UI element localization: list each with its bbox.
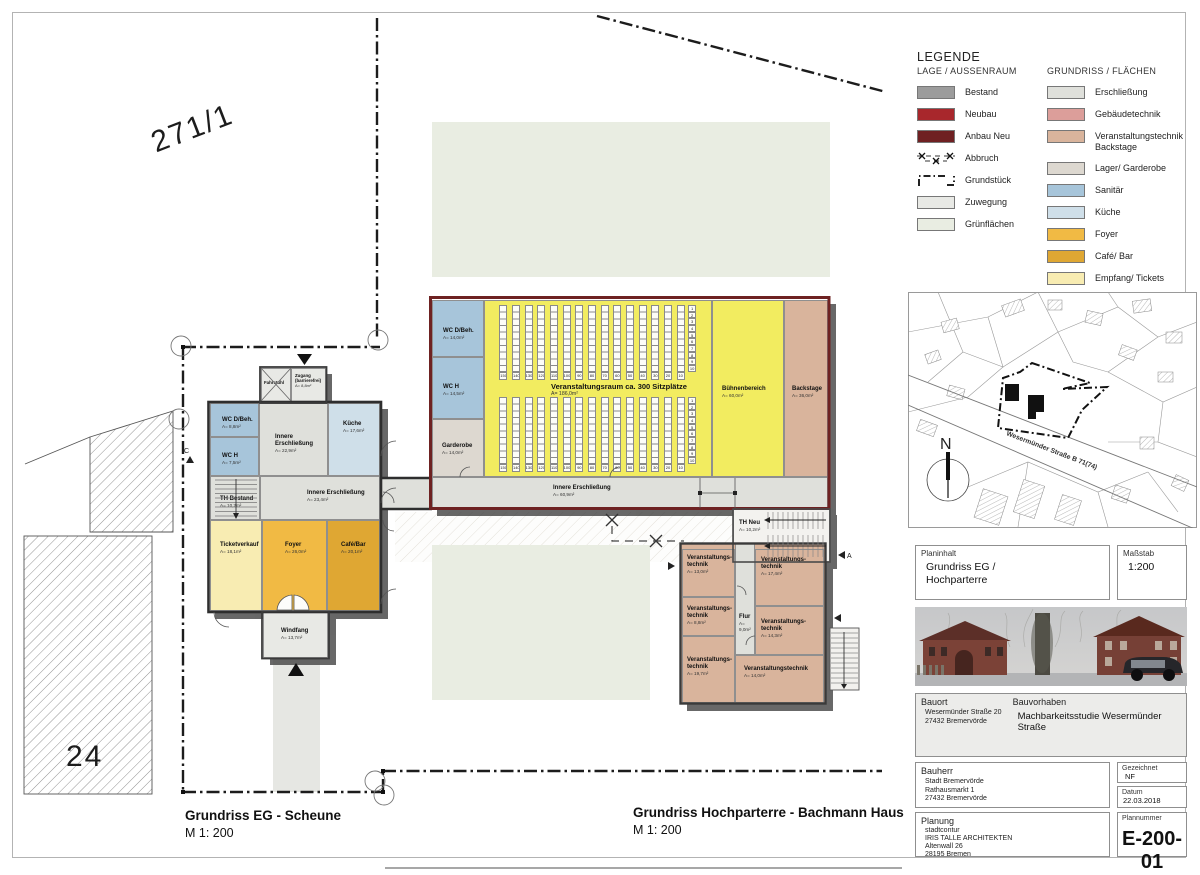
legend-swatch-anbau_neu	[917, 130, 955, 143]
seat-column	[499, 397, 507, 464]
seat-column	[525, 305, 533, 372]
bauort-label: Bauort	[916, 694, 1008, 707]
seat-column	[537, 397, 545, 464]
bauvorhaben-value: Machbarkeitsstudie Wesermünder Straße	[1008, 707, 1186, 733]
seat-count-label: 40	[639, 464, 647, 472]
plan-scale: M 1: 200	[633, 823, 904, 837]
plannummer-label: Plannummer	[1118, 813, 1186, 822]
bauherr-box: Bauherr Stadt BremervördeRathausmarkt 12…	[915, 762, 1110, 808]
parcel-label-24: 24	[66, 740, 103, 774]
planinhalt-box: Planinhalt Grundriss EG /Hochparterre	[915, 545, 1110, 600]
seat-column	[664, 305, 672, 372]
legend-swatch-neubau	[917, 108, 955, 121]
legend-swatch-zuwegung	[917, 196, 955, 209]
massstab-label: Maßstab	[1118, 546, 1186, 558]
seat-count-label: 30	[651, 372, 659, 380]
seat-count-label: 150	[499, 464, 507, 472]
seat-count-label: 150	[499, 372, 507, 380]
gezeichnet-label: Gezeichnet	[1118, 763, 1186, 772]
seat-count-label: 140	[512, 372, 520, 380]
seat-count-label: 100	[563, 464, 571, 472]
datum-value: 22.03.2018	[1118, 796, 1186, 805]
seat-column	[651, 305, 659, 372]
seat-row-number: 7	[688, 437, 696, 444]
datum-box: Datum 22.03.2018	[1117, 786, 1187, 808]
seat-count-label: 70	[601, 464, 609, 472]
seat-column	[613, 397, 621, 464]
seat-column	[639, 305, 647, 372]
seat-row-number: 5	[688, 332, 696, 339]
seat-column	[588, 305, 596, 372]
legend-item: Veranstaltungstechnik Backstage	[1047, 130, 1197, 153]
legend-item: Grundstück	[917, 174, 1042, 187]
seat-count-label: 60	[613, 464, 621, 472]
seat-column	[512, 397, 520, 464]
planung-label: Planung	[916, 813, 1109, 826]
seat-row-number: 3	[688, 410, 696, 417]
seat-column	[588, 397, 596, 464]
plannummer-box: Plannummer E-200-01	[1117, 812, 1187, 857]
legend-item: Küche	[1047, 206, 1197, 219]
seat-column	[677, 305, 685, 372]
planinhalt-label: Planinhalt	[916, 546, 1109, 558]
seat-column	[575, 305, 583, 372]
seat-row-number: 6	[688, 338, 696, 345]
legend-label: Foyer	[1095, 228, 1118, 240]
legend-header: GRUNDRISS / FLÄCHEN	[1047, 66, 1197, 76]
gezeichnet-value: NF	[1118, 772, 1186, 781]
seat-row-number: 8	[688, 444, 696, 451]
planinhalt-value: Grundriss EG /Hochparterre	[916, 558, 1109, 587]
legend-item: Abbruch	[917, 152, 1042, 165]
seat-row-number: 1	[688, 397, 696, 404]
legend-label: Neubau	[965, 108, 997, 120]
legend-label: Sanitär	[1095, 184, 1124, 196]
caption-scheune: Grundriss EG - Scheune M 1: 200	[185, 808, 341, 840]
seat-column	[601, 305, 609, 372]
drawing-sheet: FahrstuhlZugang (barrierefrei)A= 8,8m²WC…	[0, 0, 1200, 875]
seat-column	[575, 397, 583, 464]
seat-count-label: 80	[588, 464, 596, 472]
legend-item: Zuwegung	[917, 196, 1042, 209]
seat-column	[550, 397, 558, 464]
seat-count-label: 90	[575, 464, 583, 472]
site-map: Wesermünder Straße B 71(74) N	[908, 292, 1197, 528]
seat-count-label: 10	[677, 464, 685, 472]
seat-column	[499, 305, 507, 372]
seat-row-number: 10	[688, 457, 696, 464]
seat-column	[677, 397, 685, 464]
seat-column	[626, 397, 634, 464]
legend-label: Bestand	[965, 86, 998, 98]
seat-row-number: 9	[688, 358, 696, 365]
legend-item: Empfang/ Tickets	[1047, 272, 1197, 285]
legend-label: Grünflächen	[965, 218, 1014, 230]
legend-label: Lager/ Garderobe	[1095, 162, 1166, 174]
legend-item: Anbau Neu	[917, 130, 1042, 143]
gezeichnet-box: Gezeichnet NF	[1117, 762, 1187, 783]
seat-column	[537, 305, 545, 372]
legend-label: Empfang/ Tickets	[1095, 272, 1164, 284]
legend-item: Sanitär	[1047, 184, 1197, 197]
legend-title: LEGENDE	[917, 50, 980, 64]
seat-count-label: 100	[563, 372, 571, 380]
legend-swatch-foyer	[1047, 228, 1085, 241]
seat-row-number: 6	[688, 430, 696, 437]
legend-label: Gebäudetechnik	[1095, 108, 1161, 120]
legend-label: Anbau Neu	[965, 130, 1010, 142]
seat-column	[550, 305, 558, 372]
legend-item: Bestand	[917, 86, 1042, 99]
grundstueck-symbol-icon	[917, 174, 955, 187]
bauherr-value: Stadt BremervördeRathausmarkt 127432 Bre…	[916, 776, 1109, 804]
seat-row-number: 5	[688, 424, 696, 431]
legend-header: LAGE / AUSSENRAUM	[917, 66, 1042, 76]
seat-column	[525, 397, 533, 464]
seat-row-number: 1	[688, 305, 696, 312]
seat-row-number: 10	[688, 365, 696, 372]
planung-value: stadtconturIRIS TALLE ARCHITEKTENAltenwa…	[916, 826, 1109, 859]
seat-column	[563, 397, 571, 464]
seat-count-label: 70	[601, 372, 609, 380]
planung-box: Planung stadtconturIRIS TALLE ARCHITEKTE…	[915, 812, 1110, 857]
seat-row-number: 2	[688, 404, 696, 411]
legend-item: Café/ Bar	[1047, 250, 1197, 263]
bauvorhaben-label: Bauvorhaben	[1008, 694, 1186, 707]
seat-count-label: 130	[525, 372, 533, 380]
legend-swatch-bestand	[917, 86, 955, 99]
legend-swatch-gruen	[917, 218, 955, 231]
svg-text:N: N	[940, 436, 952, 453]
legend-item: Neubau	[917, 108, 1042, 121]
legend-label: Zuwegung	[965, 196, 1007, 208]
legend-swatch-backstage	[1047, 130, 1085, 143]
datum-label: Datum	[1118, 787, 1186, 796]
seat-column	[563, 305, 571, 372]
legend-label: Küche	[1095, 206, 1121, 218]
legend-item: Gebäudetechnik	[1047, 108, 1197, 121]
seat-count-label: 50	[626, 464, 634, 472]
legend-swatch-kueche	[1047, 206, 1085, 219]
legend-item: Grünflächen	[917, 218, 1042, 231]
legend-swatch-erschliessung	[1047, 86, 1085, 99]
plan-title: Grundriss Hochparterre - Bachmann Haus	[633, 805, 904, 820]
seat-column	[512, 305, 520, 372]
seat-row-number: 9	[688, 450, 696, 457]
legend-item: Lager/ Garderobe	[1047, 162, 1197, 175]
site-photo	[915, 607, 1187, 686]
legend-item: Foyer	[1047, 228, 1197, 241]
seat-count-label: 10	[677, 372, 685, 380]
seat-count-label: 60	[613, 372, 621, 380]
seat-count-label: 20	[664, 372, 672, 380]
plannummer-value: E-200-01	[1118, 828, 1186, 874]
seat-count-label: 90	[575, 372, 583, 380]
caption-bachmann: Grundriss Hochparterre - Bachmann Haus M…	[633, 805, 904, 837]
bauort-value: Wesermünder Straße 2027432 Bremervörde	[916, 707, 1008, 726]
seat-column	[626, 305, 634, 372]
plan-title: Grundriss EG - Scheune	[185, 808, 341, 823]
seat-count-label: 80	[588, 372, 596, 380]
abbruch-symbol-icon	[917, 152, 955, 165]
legend-swatch-tickets	[1047, 272, 1085, 285]
seat-count-label: 120	[537, 464, 545, 472]
bauherr-label: Bauherr	[916, 763, 1109, 776]
seat-count-label: 120	[537, 372, 545, 380]
seat-column	[651, 397, 659, 464]
seat-count-label: 30	[651, 464, 659, 472]
legend-label: Erschließung	[1095, 86, 1148, 98]
legend-label: Café/ Bar	[1095, 250, 1133, 262]
massstab-box: Maßstab 1:200	[1117, 545, 1187, 600]
seat-count-label: 50	[626, 372, 634, 380]
legend-swatch-cafe	[1047, 250, 1085, 263]
bauort-box: Bauort Wesermünder Straße 2027432 Bremer…	[915, 693, 1187, 757]
plan-scale: M 1: 200	[185, 826, 341, 840]
legend-swatch-lager	[1047, 162, 1085, 175]
seat-row-number: 3	[688, 318, 696, 325]
seat-row-number: 4	[688, 417, 696, 424]
seat-count-label: 110	[550, 372, 558, 380]
seat-count-label: 20	[664, 464, 672, 472]
seat-column	[613, 305, 621, 372]
seat-count-label: 110	[550, 464, 558, 472]
seat-count-label: 130	[525, 464, 533, 472]
seat-row-number: 8	[688, 352, 696, 359]
seat-row-number: 2	[688, 312, 696, 319]
legend-column: LAGE / AUSSENRAUMBestandNeubauAnbau NeuA…	[917, 66, 1042, 240]
legend-item: Erschließung	[1047, 86, 1197, 99]
seat-row-number: 7	[688, 345, 696, 352]
legend-swatch-gebaeudetechnik	[1047, 108, 1085, 121]
seat-column	[639, 397, 647, 464]
legend-swatch-sanitaer	[1047, 184, 1085, 197]
massstab-value: 1:200	[1118, 558, 1186, 574]
seat-column	[601, 397, 609, 464]
legend-label: Veranstaltungstechnik Backstage	[1095, 130, 1197, 153]
legend-label: Grundstück	[965, 174, 1011, 186]
seat-count-label: 40	[639, 372, 647, 380]
seat-row-number: 4	[688, 325, 696, 332]
seat-column	[664, 397, 672, 464]
legend-label: Abbruch	[965, 152, 999, 164]
seat-count-label: 140	[512, 464, 520, 472]
